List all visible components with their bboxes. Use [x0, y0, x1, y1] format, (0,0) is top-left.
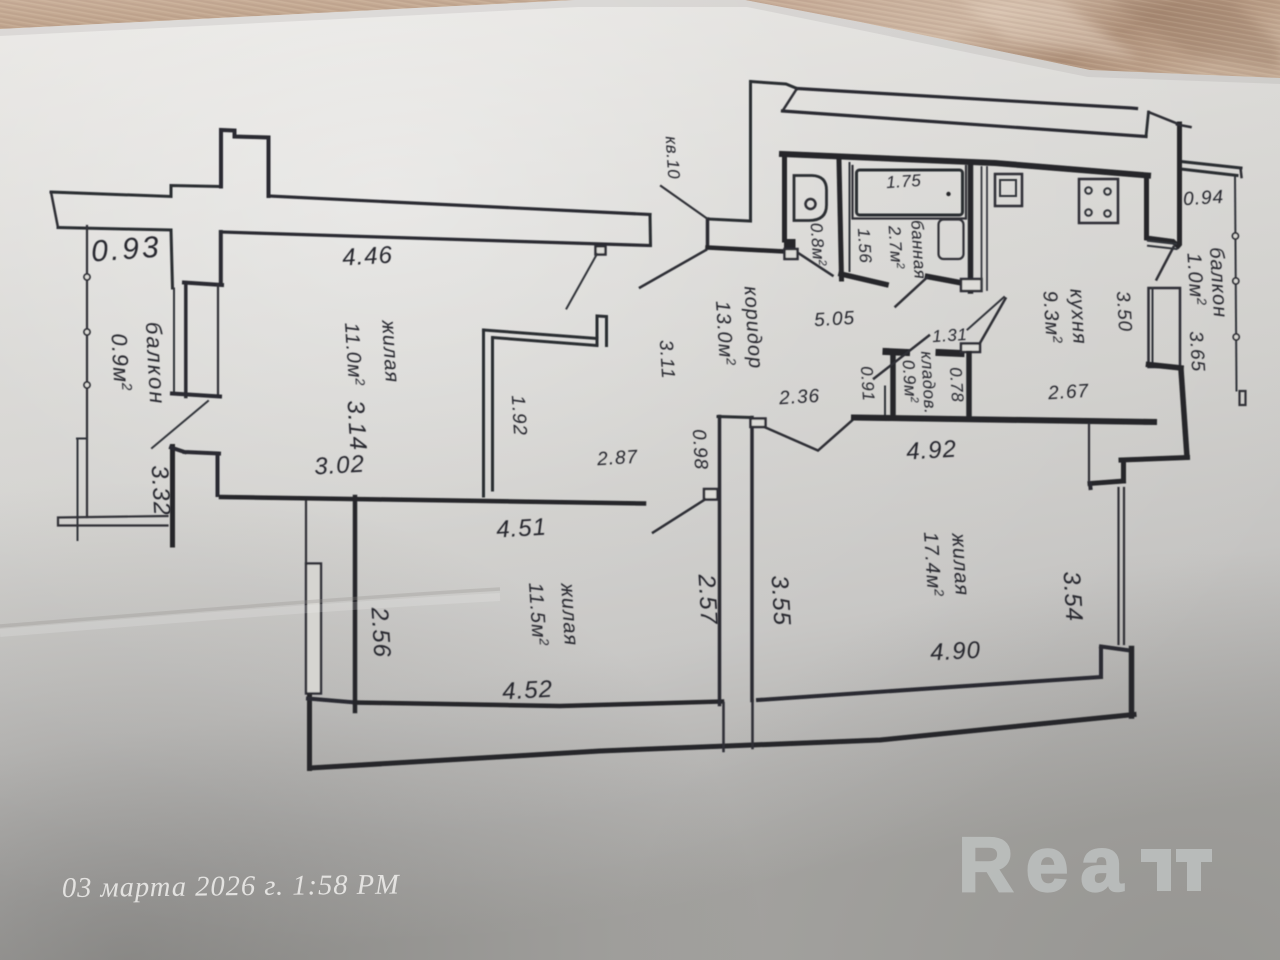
svg-text:0.9м2: 0.9м2 — [106, 333, 135, 393]
svg-text:4.52: 4.52 — [502, 676, 554, 706]
svg-text:Rea: Rea — [958, 822, 1135, 908]
svg-text:0.91: 0.91 — [857, 366, 878, 402]
svg-text:0.98: 0.98 — [688, 429, 711, 471]
svg-text:2.56: 2.56 — [365, 605, 395, 658]
svg-text:0.78: 0.78 — [946, 367, 967, 403]
svg-text:кухня: кухня — [1065, 288, 1090, 345]
svg-text:4.92: 4.92 — [905, 435, 957, 465]
svg-text:балкон: балкон — [1205, 247, 1231, 319]
svg-text:2.57: 2.57 — [692, 572, 722, 626]
svg-text:0.9м2: 0.9м2 — [899, 359, 921, 404]
svg-text:0.93: 0.93 — [90, 231, 163, 269]
svg-text:2.7м2: 2.7м2 — [885, 224, 907, 270]
svg-text:жилая: жилая — [556, 582, 582, 647]
svg-text:3.32: 3.32 — [146, 465, 176, 517]
svg-text:2.87: 2.87 — [596, 447, 640, 471]
svg-text:3.50: 3.50 — [1112, 291, 1135, 333]
svg-text:1.75: 1.75 — [886, 171, 922, 192]
svg-text:4.51: 4.51 — [495, 513, 547, 543]
svg-text:3.54: 3.54 — [1057, 570, 1087, 622]
svg-text:1.31: 1.31 — [932, 325, 968, 346]
svg-text:банная: банная — [907, 220, 930, 280]
svg-text:3.02: 3.02 — [313, 450, 365, 480]
svg-text:жилая: жилая — [947, 532, 973, 597]
svg-text:жилая: жилая — [377, 319, 403, 384]
svg-text:4.90: 4.90 — [930, 637, 982, 667]
svg-text:0.94: 0.94 — [1183, 187, 1225, 210]
svg-text:3.55: 3.55 — [765, 574, 795, 626]
svg-text:3.14: 3.14 — [341, 399, 371, 451]
svg-text:1.56: 1.56 — [854, 228, 875, 264]
svg-text:балкон: балкон — [141, 321, 170, 406]
svg-text:3.11: 3.11 — [655, 339, 678, 380]
svg-text:3.65: 3.65 — [1185, 331, 1208, 373]
svg-text:03 марта 2026 г. 1:58 PM: 03 марта 2026 г. 1:58 PM — [62, 869, 401, 904]
svg-text:1.92: 1.92 — [507, 395, 530, 437]
svg-text:2.36: 2.36 — [778, 386, 821, 410]
svg-text:кв.10: кв.10 — [662, 136, 684, 180]
svg-text:кладов.: кладов. — [917, 351, 940, 415]
svg-text:2.67: 2.67 — [1047, 381, 1091, 405]
svg-text:4.46: 4.46 — [341, 241, 393, 271]
svg-text:5.05: 5.05 — [814, 308, 856, 331]
svg-text:0.8м2: 0.8м2 — [807, 222, 829, 267]
